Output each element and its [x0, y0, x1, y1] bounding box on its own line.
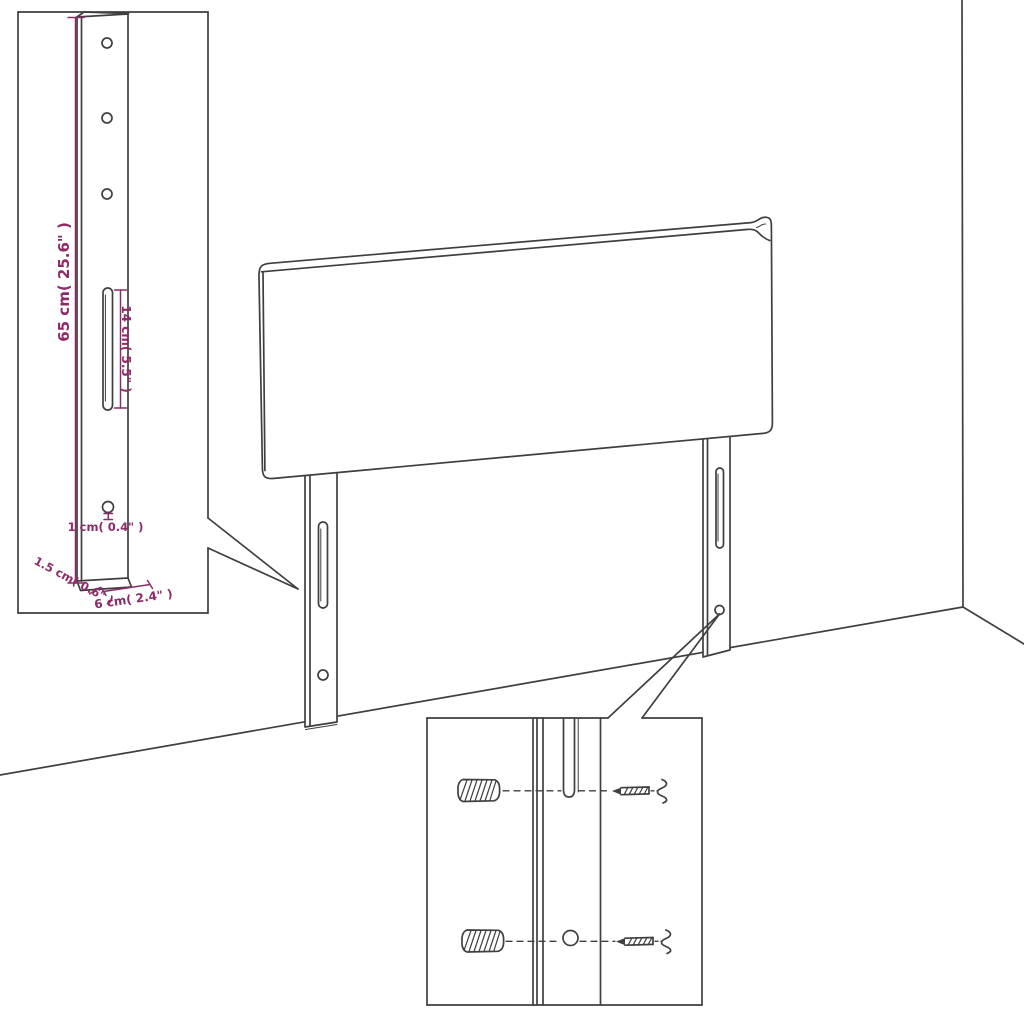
callout-line	[642, 614, 720, 718]
right-leg-slot	[716, 468, 724, 548]
floor-line-right	[963, 607, 1024, 644]
callout-left-leg	[208, 518, 298, 589]
bracket-hole-lower	[102, 189, 112, 199]
alignment-dashes	[503, 791, 615, 942]
bracket-front-view	[77, 12, 132, 591]
dim-slot-length: 14 cm( 5.5" )	[115, 290, 134, 408]
dim-bracket-width: 6 cm( 2.4" )	[93, 581, 173, 612]
screw-icon	[612, 780, 667, 804]
mounting-strip	[533, 718, 601, 1005]
bracket-bottom-hole	[103, 502, 114, 513]
dim-label-hole: 1 cm( 0.4" )	[68, 520, 144, 534]
inset-frame	[427, 718, 702, 1005]
bracket-detail-inset: 65 cm( 25.6" ) 14 cm( 5.5" ) 1 cm( 0.4" …	[18, 12, 208, 613]
bracket-hole-middle	[102, 113, 112, 123]
right-mounting-leg	[703, 433, 730, 657]
wall-corner-line	[962, 0, 963, 607]
wall-anchor-icon	[458, 780, 500, 802]
wall-anchor-icon	[462, 930, 504, 952]
dim-hole-diameter: 1 cm( 0.4" )	[68, 514, 144, 535]
mounting-detail-inset	[427, 718, 702, 1005]
screw-tip	[612, 788, 621, 795]
headboard-panel	[259, 217, 772, 478]
mounting-hole	[563, 931, 578, 946]
diagram-canvas: 65 cm( 25.6" ) 14 cm( 5.5" ) 1 cm( 0.4" …	[0, 0, 1024, 1024]
bracket-slot	[103, 288, 113, 410]
left-mounting-leg	[305, 467, 337, 730]
anchor-thread-hatching	[460, 780, 496, 801]
screw-icon	[616, 930, 671, 954]
dim-bracket-height: 65 cm( 25.6" )	[55, 18, 84, 584]
left-leg-hole	[318, 670, 328, 680]
panel-outline	[259, 217, 772, 478]
bracket-hole-top	[102, 38, 112, 48]
left-leg-slot	[319, 522, 328, 608]
assembly-diagram: 65 cm( 25.6" ) 14 cm( 5.5" ) 1 cm( 0.4" …	[0, 0, 1024, 1024]
dim-label-slot: 14 cm( 5.5" )	[119, 305, 133, 392]
floor-line-left	[0, 607, 963, 775]
mounting-slot	[564, 718, 575, 797]
screw-shaft-top	[621, 787, 649, 788]
dim-label-height: 65 cm( 25.6" )	[55, 222, 73, 342]
bracket-top-edge	[77, 14, 128, 17]
screw-head	[658, 780, 667, 804]
